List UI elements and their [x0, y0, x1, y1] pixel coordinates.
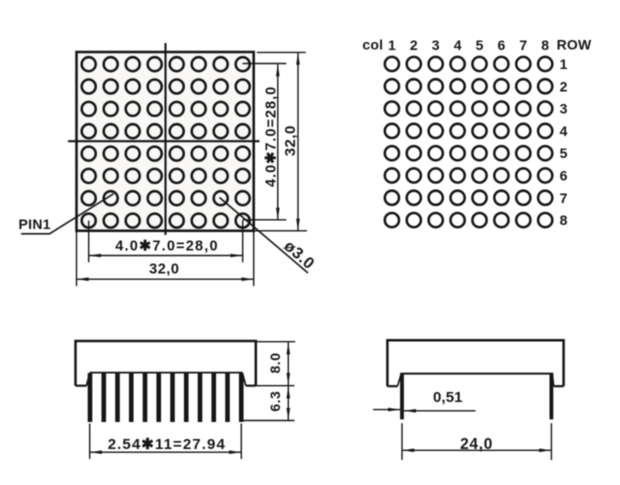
- svg-text:5: 5: [560, 145, 568, 161]
- svg-text:PIN1: PIN1: [19, 216, 51, 232]
- svg-text:32,0: 32,0: [282, 125, 299, 156]
- svg-text:6.3: 6.3: [267, 391, 283, 412]
- svg-text:2: 2: [410, 37, 418, 53]
- svg-text:1: 1: [388, 37, 396, 53]
- svg-text:ROW: ROW: [557, 37, 592, 53]
- svg-text:5: 5: [476, 37, 484, 53]
- svg-text:4: 4: [454, 37, 462, 53]
- svg-text:7: 7: [519, 37, 527, 53]
- svg-text:ø3.0: ø3.0: [280, 238, 317, 273]
- svg-text:8: 8: [560, 212, 568, 228]
- svg-text:24,0: 24,0: [460, 436, 493, 453]
- svg-text:1: 1: [560, 56, 568, 72]
- svg-text:4.0✱7.0=28,0: 4.0✱7.0=28,0: [115, 238, 219, 254]
- svg-text:6: 6: [498, 37, 506, 53]
- svg-text:3: 3: [432, 37, 440, 53]
- svg-text:6: 6: [560, 168, 568, 184]
- svg-text:7: 7: [560, 190, 568, 206]
- svg-text:2: 2: [560, 78, 568, 94]
- svg-text:8: 8: [541, 37, 549, 53]
- svg-text:8.0: 8.0: [267, 353, 283, 374]
- svg-text:4: 4: [560, 123, 568, 139]
- svg-text:col: col: [362, 37, 383, 53]
- svg-text:3: 3: [560, 101, 568, 117]
- svg-text:2.54✱11=27.94: 2.54✱11=27.94: [108, 436, 226, 453]
- svg-text:32,0: 32,0: [149, 261, 179, 277]
- svg-text:0,51: 0,51: [433, 389, 463, 406]
- svg-text:4.0✱7.0=28,0: 4.0✱7.0=28,0: [264, 86, 280, 187]
